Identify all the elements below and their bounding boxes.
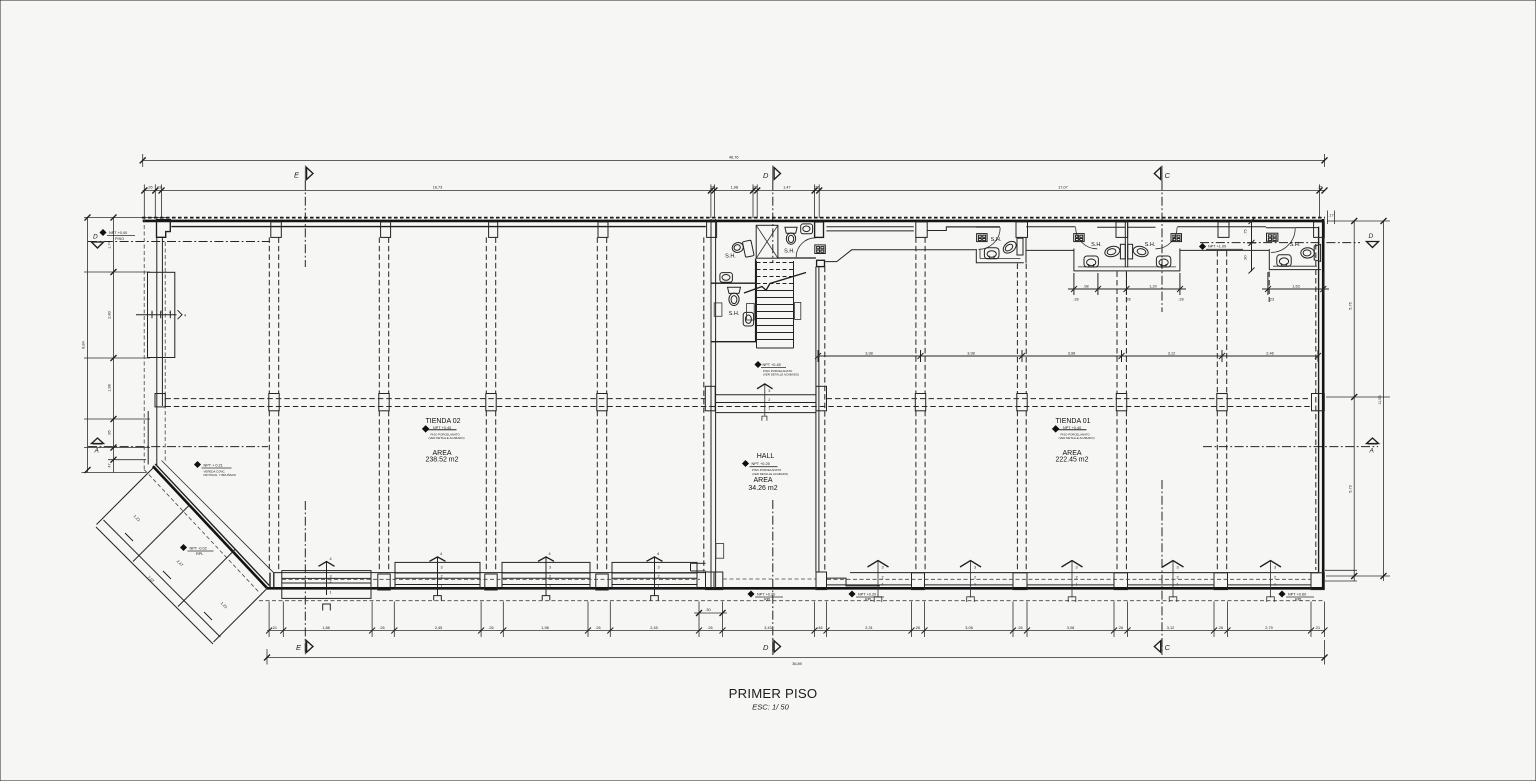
svg-text:4: 4: [184, 314, 186, 318]
svg-text:.90: .90: [1244, 255, 1248, 260]
svg-text:D: D: [763, 171, 769, 180]
svg-text:3,08: 3,08: [1067, 626, 1074, 630]
svg-text:2,47: 2,47: [176, 559, 184, 567]
svg-text:.26: .26: [147, 185, 152, 189]
svg-text:NPT +0.00: NPT +0.00: [109, 231, 127, 235]
svg-text:1,63: 1,63: [1292, 285, 1299, 289]
svg-text:2,45: 2,45: [435, 626, 442, 630]
svg-text:.26: .26: [707, 626, 712, 630]
svg-text:.26: .26: [595, 626, 600, 630]
svg-text:2,31: 2,31: [865, 626, 872, 630]
svg-text:S.H.: S.H.: [725, 254, 736, 260]
svg-text:NPT +0.20: NPT +0.20: [757, 592, 775, 596]
svg-text:3: 3: [768, 389, 770, 393]
svg-text:3,98: 3,98: [967, 351, 974, 355]
svg-text:2,79: 2,79: [1265, 626, 1272, 630]
svg-text:FROTACH. Y BRUÑADO: FROTACH. Y BRUÑADO: [204, 472, 237, 477]
svg-text:C: C: [1165, 171, 1171, 180]
svg-text:2: 2: [441, 575, 443, 579]
svg-text:1: 1: [882, 583, 884, 587]
svg-text:17,07: 17,07: [1058, 186, 1068, 190]
svg-text:(VER DETALLE ACABADO): (VER DETALLE ACABADO): [429, 436, 465, 440]
svg-text:.98: .98: [1083, 285, 1088, 289]
svg-text:NPT + 0.21: NPT + 0.21: [204, 463, 223, 467]
svg-text:1: 1: [1177, 583, 1179, 587]
svg-text:3,12: 3,12: [1167, 626, 1174, 630]
svg-text:1: 1: [974, 583, 976, 587]
svg-text:AREA: AREA: [753, 477, 772, 484]
svg-text:RPL: RPL: [865, 598, 872, 602]
svg-text:238.52 m2: 238.52 m2: [425, 456, 458, 463]
svg-text:.26: .26: [1218, 626, 1223, 630]
svg-text:NPT +0.20: NPT +0.20: [858, 592, 876, 596]
svg-text:3: 3: [1076, 566, 1078, 570]
svg-text:D: D: [93, 234, 98, 241]
svg-text:2: 2: [658, 575, 660, 579]
svg-text:2: 2: [1274, 576, 1276, 580]
svg-text:.26: .26: [379, 626, 384, 630]
svg-text:RPL: RPL: [764, 598, 771, 602]
svg-text:3: 3: [549, 566, 551, 570]
svg-text:2: 2: [330, 579, 332, 583]
svg-text:.26: .26: [915, 626, 920, 630]
svg-text:1,47: 1,47: [783, 185, 790, 189]
svg-text:34.26 m2: 34.26 m2: [748, 485, 777, 492]
svg-text:C: C: [1165, 643, 1171, 652]
svg-text:1,98: 1,98: [541, 626, 548, 630]
svg-text:3,43: 3,43: [764, 626, 771, 630]
svg-text:S.H.: S.H.: [784, 248, 795, 254]
svg-text:NPT +0.25: NPT +0.25: [752, 462, 770, 466]
svg-text:1: 1: [549, 585, 551, 589]
svg-text:1,20: 1,20: [1149, 285, 1156, 289]
svg-text:A: A: [1369, 448, 1374, 455]
svg-text:2: 2: [1177, 576, 1179, 580]
svg-text:.28: .28: [1178, 298, 1183, 302]
svg-text:1: 1: [658, 585, 660, 589]
svg-text:.28: .28: [1125, 298, 1130, 302]
svg-text:222.45 m2: 222.45 m2: [1055, 456, 1088, 463]
svg-text:.21: .21: [1315, 626, 1320, 630]
svg-text:1: 1: [1274, 583, 1276, 587]
svg-text:TIENDA 01: TIENDA 01: [1055, 418, 1090, 425]
svg-text:3: 3: [974, 566, 976, 570]
svg-text:3: 3: [1274, 566, 1276, 570]
svg-text:3,08: 3,08: [965, 626, 972, 630]
svg-text:PRIMER PISO: PRIMER PISO: [729, 686, 818, 701]
svg-text:4: 4: [440, 552, 442, 556]
svg-text:2,46: 2,46: [1266, 351, 1273, 355]
svg-text:.25: .25: [710, 185, 715, 189]
svg-text:(VER DETALLE ACABADO): (VER DETALLE ACABADO): [752, 472, 788, 476]
svg-text:2: 2: [768, 398, 770, 402]
svg-text:.75: .75: [1244, 229, 1248, 234]
svg-text:D: D: [1369, 233, 1374, 240]
svg-text:1,88: 1,88: [322, 626, 329, 630]
svg-text:4: 4: [549, 552, 551, 556]
svg-text:1: 1: [441, 585, 443, 589]
svg-text:2: 2: [1076, 576, 1078, 580]
svg-text:E: E: [294, 171, 300, 180]
svg-text:3: 3: [1177, 566, 1179, 570]
svg-text:RPL: RPL: [196, 552, 203, 556]
svg-text:.25: .25: [752, 185, 757, 189]
svg-text:5,76: 5,76: [1349, 302, 1353, 309]
svg-text:11,55: 11,55: [1378, 395, 1382, 404]
svg-text:.26: .26: [1017, 626, 1022, 630]
svg-text:.30: .30: [705, 608, 710, 612]
svg-text:.25: .25: [814, 185, 819, 189]
svg-text:NPT -0.02: NPT -0.02: [190, 546, 207, 550]
svg-text:1,23: 1,23: [220, 601, 228, 609]
svg-text:1,74: 1,74: [108, 241, 112, 248]
svg-text:3: 3: [330, 575, 332, 579]
svg-text:4: 4: [330, 557, 332, 561]
svg-text:2: 2: [974, 576, 976, 580]
svg-text:2: 2: [549, 575, 551, 579]
svg-text:1: 1: [151, 310, 153, 314]
svg-text:.95: .95: [108, 430, 112, 435]
svg-text:S.H.: S.H.: [991, 237, 1002, 243]
svg-text:(VER DETALLE ACABADO): (VER DETALLE ACABADO): [763, 373, 799, 377]
svg-text:.17: .17: [1328, 214, 1333, 218]
svg-text:3: 3: [882, 566, 884, 570]
svg-text:16,73: 16,73: [433, 186, 443, 190]
svg-text:PISO: PISO: [115, 237, 124, 241]
svg-text:2: 2: [882, 576, 884, 580]
svg-text:3: 3: [441, 566, 443, 570]
svg-text:HALL: HALL: [757, 453, 775, 460]
svg-text:.21: .21: [272, 626, 277, 630]
svg-text:.25: .25: [1317, 185, 1322, 189]
svg-text:3,98: 3,98: [865, 351, 872, 355]
svg-text:A: A: [94, 448, 99, 455]
svg-text:RPL: RPL: [1295, 598, 1302, 602]
svg-text:3: 3: [658, 566, 660, 570]
svg-text:S.H.: S.H.: [1145, 242, 1156, 248]
svg-text:5,79: 5,79: [1349, 485, 1353, 492]
svg-text:.23: .23: [156, 185, 161, 189]
svg-text:E: E: [296, 643, 302, 652]
svg-text:46,76: 46,76: [729, 156, 739, 160]
svg-text:TIENDA 02: TIENDA 02: [425, 418, 460, 425]
svg-text:S.H.: S.H.: [1290, 242, 1301, 248]
svg-text:3,12: 3,12: [1168, 351, 1175, 355]
svg-text:3: 3: [169, 310, 171, 314]
svg-text:S.H.: S.H.: [729, 311, 740, 317]
svg-text:2: 2: [160, 310, 162, 314]
svg-text:2,45: 2,45: [650, 626, 657, 630]
svg-text:3,98: 3,98: [1068, 351, 1075, 355]
svg-text:4: 4: [657, 552, 659, 556]
svg-text:1: 1: [1076, 583, 1078, 587]
svg-text:36,89: 36,89: [792, 662, 802, 666]
svg-text:(VER DETALLE ACABADO): (VER DETALLE ACABADO): [1059, 436, 1095, 440]
svg-text:1,98: 1,98: [108, 384, 112, 391]
svg-text:.26: .26: [1118, 626, 1123, 630]
svg-text:NPT +1.00: NPT +1.00: [1208, 245, 1226, 249]
svg-text:NPT +0.45: NPT +0.45: [763, 363, 781, 367]
svg-text:ESC: 1/ 50: ESC: 1/ 50: [752, 703, 789, 712]
svg-text:.28: .28: [1073, 298, 1078, 302]
svg-text:.46: .46: [817, 626, 822, 630]
svg-text:1,22: 1,22: [133, 514, 141, 522]
svg-text:.47: .47: [108, 463, 112, 468]
svg-text:1,98: 1,98: [731, 185, 738, 189]
svg-text:.26: .26: [488, 626, 493, 630]
svg-text:1: 1: [330, 591, 332, 595]
svg-text:2,80: 2,80: [108, 311, 112, 318]
svg-text:8,84: 8,84: [82, 341, 86, 348]
svg-text:S.H.: S.H.: [1091, 242, 1102, 248]
svg-text:.23: .23: [1269, 298, 1274, 302]
svg-text:D: D: [763, 643, 769, 652]
svg-text:7,07: 7,07: [147, 575, 155, 583]
svg-text:NPT +0.60: NPT +0.60: [1288, 592, 1306, 596]
svg-text:1: 1: [768, 406, 770, 410]
